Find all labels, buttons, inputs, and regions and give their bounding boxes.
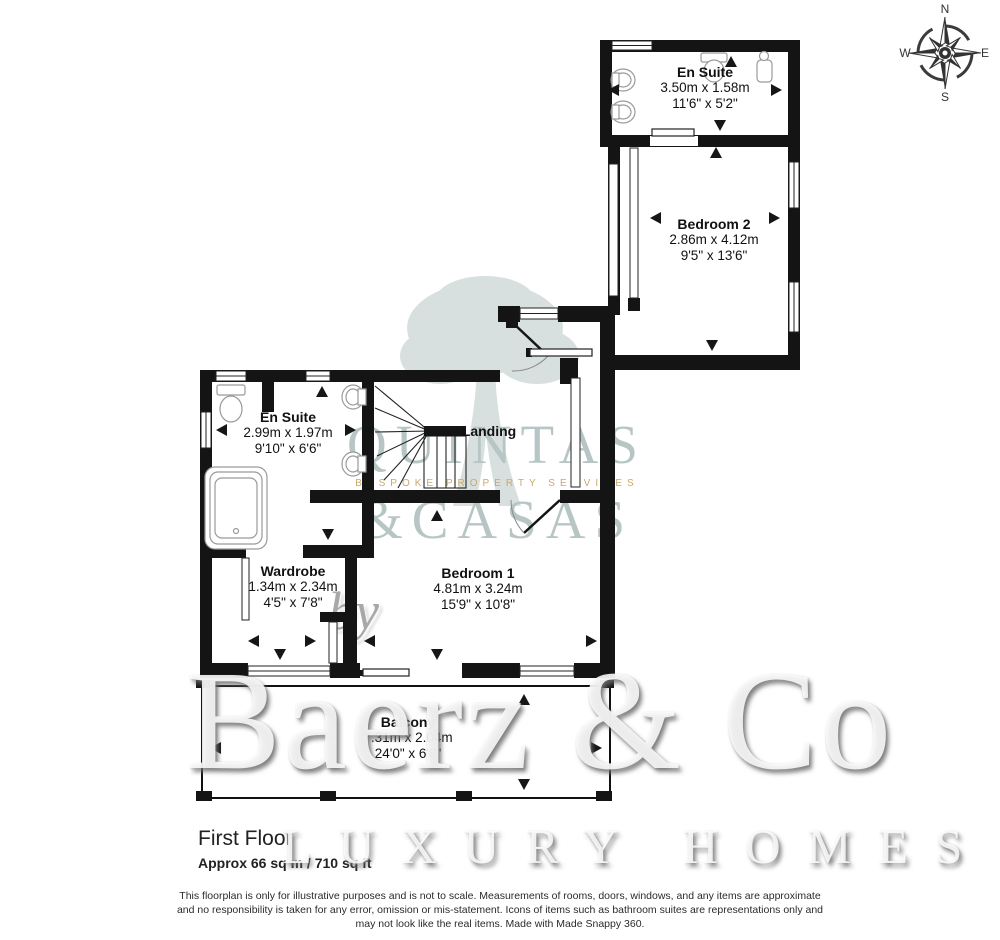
room-dim-metric: 2.99m x 1.97m	[243, 425, 332, 441]
sink-icon	[342, 385, 366, 409]
room-label-bedroom-1: Bedroom 1 4.81m x 3.24m 15'9" x 10'8"	[433, 565, 522, 613]
compass-west-label: W	[899, 46, 911, 60]
room-label-landing: Landing	[462, 423, 516, 439]
room-label-bedroom-2: Bedroom 2 2.86m x 4.12m 9'5" x 13'6"	[669, 216, 758, 264]
room-name: En Suite	[243, 409, 332, 425]
room-label-wardrobe: Wardrobe 1.34m x 2.34m 4'5" x 7'8"	[248, 563, 337, 611]
room-name: Bedroom 2	[669, 216, 758, 232]
walls-upper-block	[498, 40, 800, 678]
compass-south-label: S	[941, 90, 949, 104]
disclaimer-line-2: and no responsibility is taken for any e…	[0, 904, 1000, 916]
room-name: Landing	[462, 423, 516, 439]
room-dim-imperial: 9'5" x 13'6"	[669, 248, 758, 264]
floorplan-page: QUINTAS BESPOKE PROPERTY SERVICES &CASAS…	[0, 0, 1000, 940]
stairs	[375, 386, 466, 488]
floor-title: First Floor	[198, 827, 293, 851]
brand-sub-watermark: LUXURY HOMES	[282, 818, 989, 875]
room-dim-metric: 3.50m x 1.58m	[660, 80, 749, 96]
room-dim-imperial: 15'9" x 10'8"	[433, 597, 522, 613]
disclaimer-line-1: This floorplan is only for illustrative …	[0, 890, 1000, 902]
toilet-icon	[217, 385, 245, 422]
shower-icon	[757, 52, 772, 83]
bathtub-icon	[205, 467, 267, 549]
room-dim-imperial: 4'5" x 7'8"	[248, 595, 337, 611]
brand-watermark: Baerz & Co	[186, 638, 894, 802]
room-dim-metric: 4.81m x 3.24m	[433, 581, 522, 597]
sink-icon	[342, 452, 366, 476]
compass-east-label: E	[981, 46, 989, 60]
room-dim-metric: 2.86m x 4.12m	[669, 232, 758, 248]
compass-rose: N E S W	[899, 2, 989, 104]
room-dim-metric: 1.34m x 2.34m	[248, 579, 337, 595]
sink-icon	[611, 101, 635, 123]
room-name: En Suite	[660, 64, 749, 80]
room-label-ensuite-left: En Suite 2.99m x 1.97m 9'10" x 6'6"	[243, 409, 332, 457]
room-name: Bedroom 1	[433, 565, 522, 581]
room-label-ensuite-top: En Suite 3.50m x 1.58m 11'6" x 5'2"	[660, 64, 749, 112]
room-dim-imperial: 11'6" x 5'2"	[660, 96, 749, 112]
compass-north-label: N	[941, 2, 950, 16]
room-name: Wardrobe	[248, 563, 337, 579]
room-dim-imperial: 9'10" x 6'6"	[243, 441, 332, 457]
bathroom-fixtures	[205, 52, 772, 550]
disclaimer-line-3: may not look like the real items. Made w…	[0, 918, 1000, 930]
